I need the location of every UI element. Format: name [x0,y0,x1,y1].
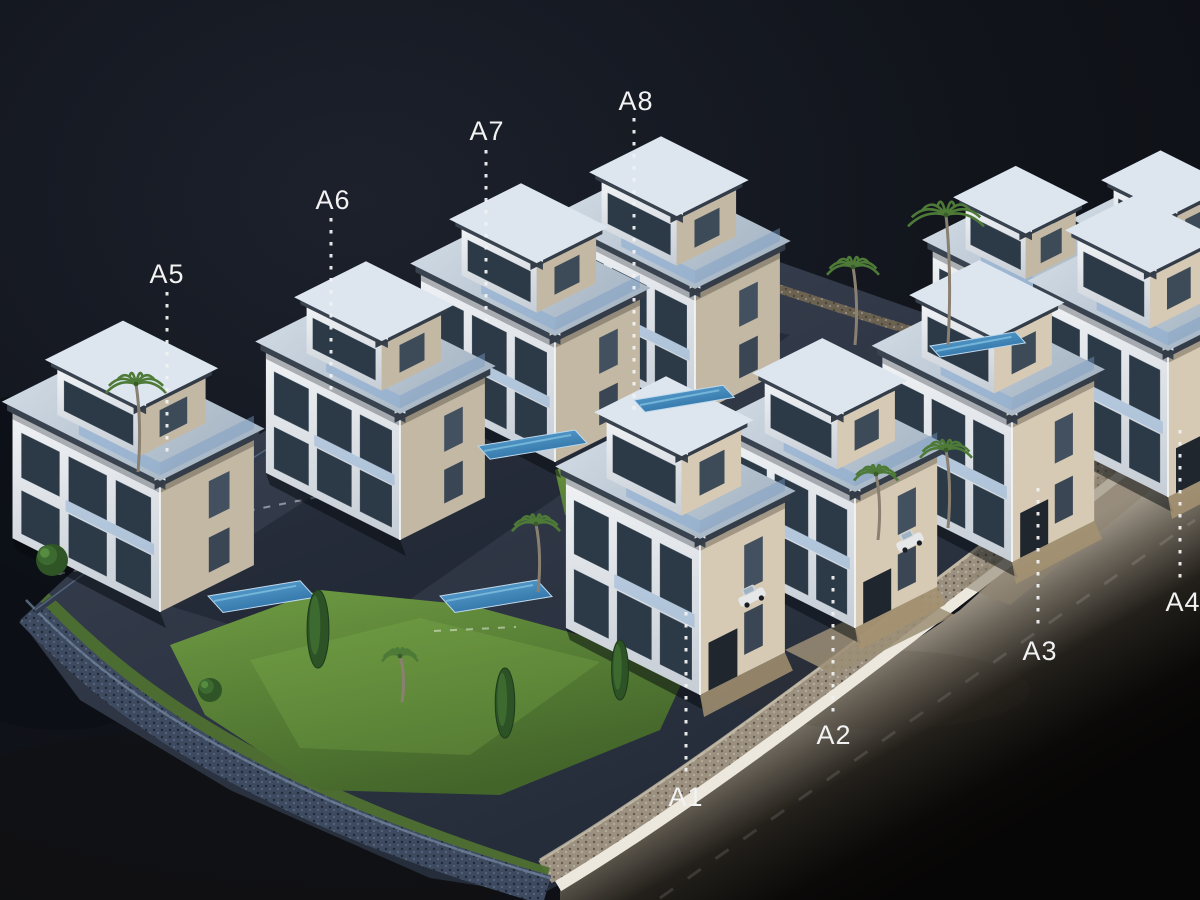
site-render-svg: A1A2A3A4A5A6A7A8 [0,0,1200,900]
cypress-lawn-2 [495,668,515,738]
unit-label-a5: A5 [149,259,184,289]
unit-label-a1: A1 [668,782,703,812]
unit-label-a4: A4 [1165,587,1200,617]
unit-label-a6: A6 [315,185,350,215]
unit-label-a2: A2 [816,720,851,750]
cypress-lawn-1 [307,590,329,668]
bush-lawn-1 [198,678,222,702]
tree-shore-left [36,544,68,576]
cypress-lawn-3 [612,640,629,700]
unit-label-a3: A3 [1022,636,1057,666]
unit-label-a8: A8 [618,86,653,116]
unit-label-a7: A7 [469,116,504,146]
architectural-render: A1A2A3A4A5A6A7A8 [0,0,1200,900]
